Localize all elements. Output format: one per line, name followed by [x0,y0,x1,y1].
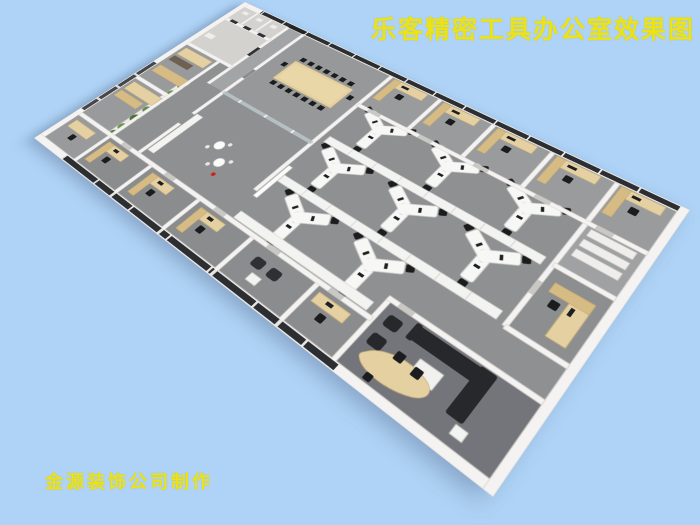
floorplan-svg [34,2,690,497]
office-render-canvas: 乐客精密工具办公室效果图 金源装饰公司制作 [0,0,700,525]
studio-credit: 金源装饰公司制作 [45,468,213,494]
floorplan-3d [34,2,690,497]
render-title: 乐客精密工具办公室效果图 [371,10,700,46]
